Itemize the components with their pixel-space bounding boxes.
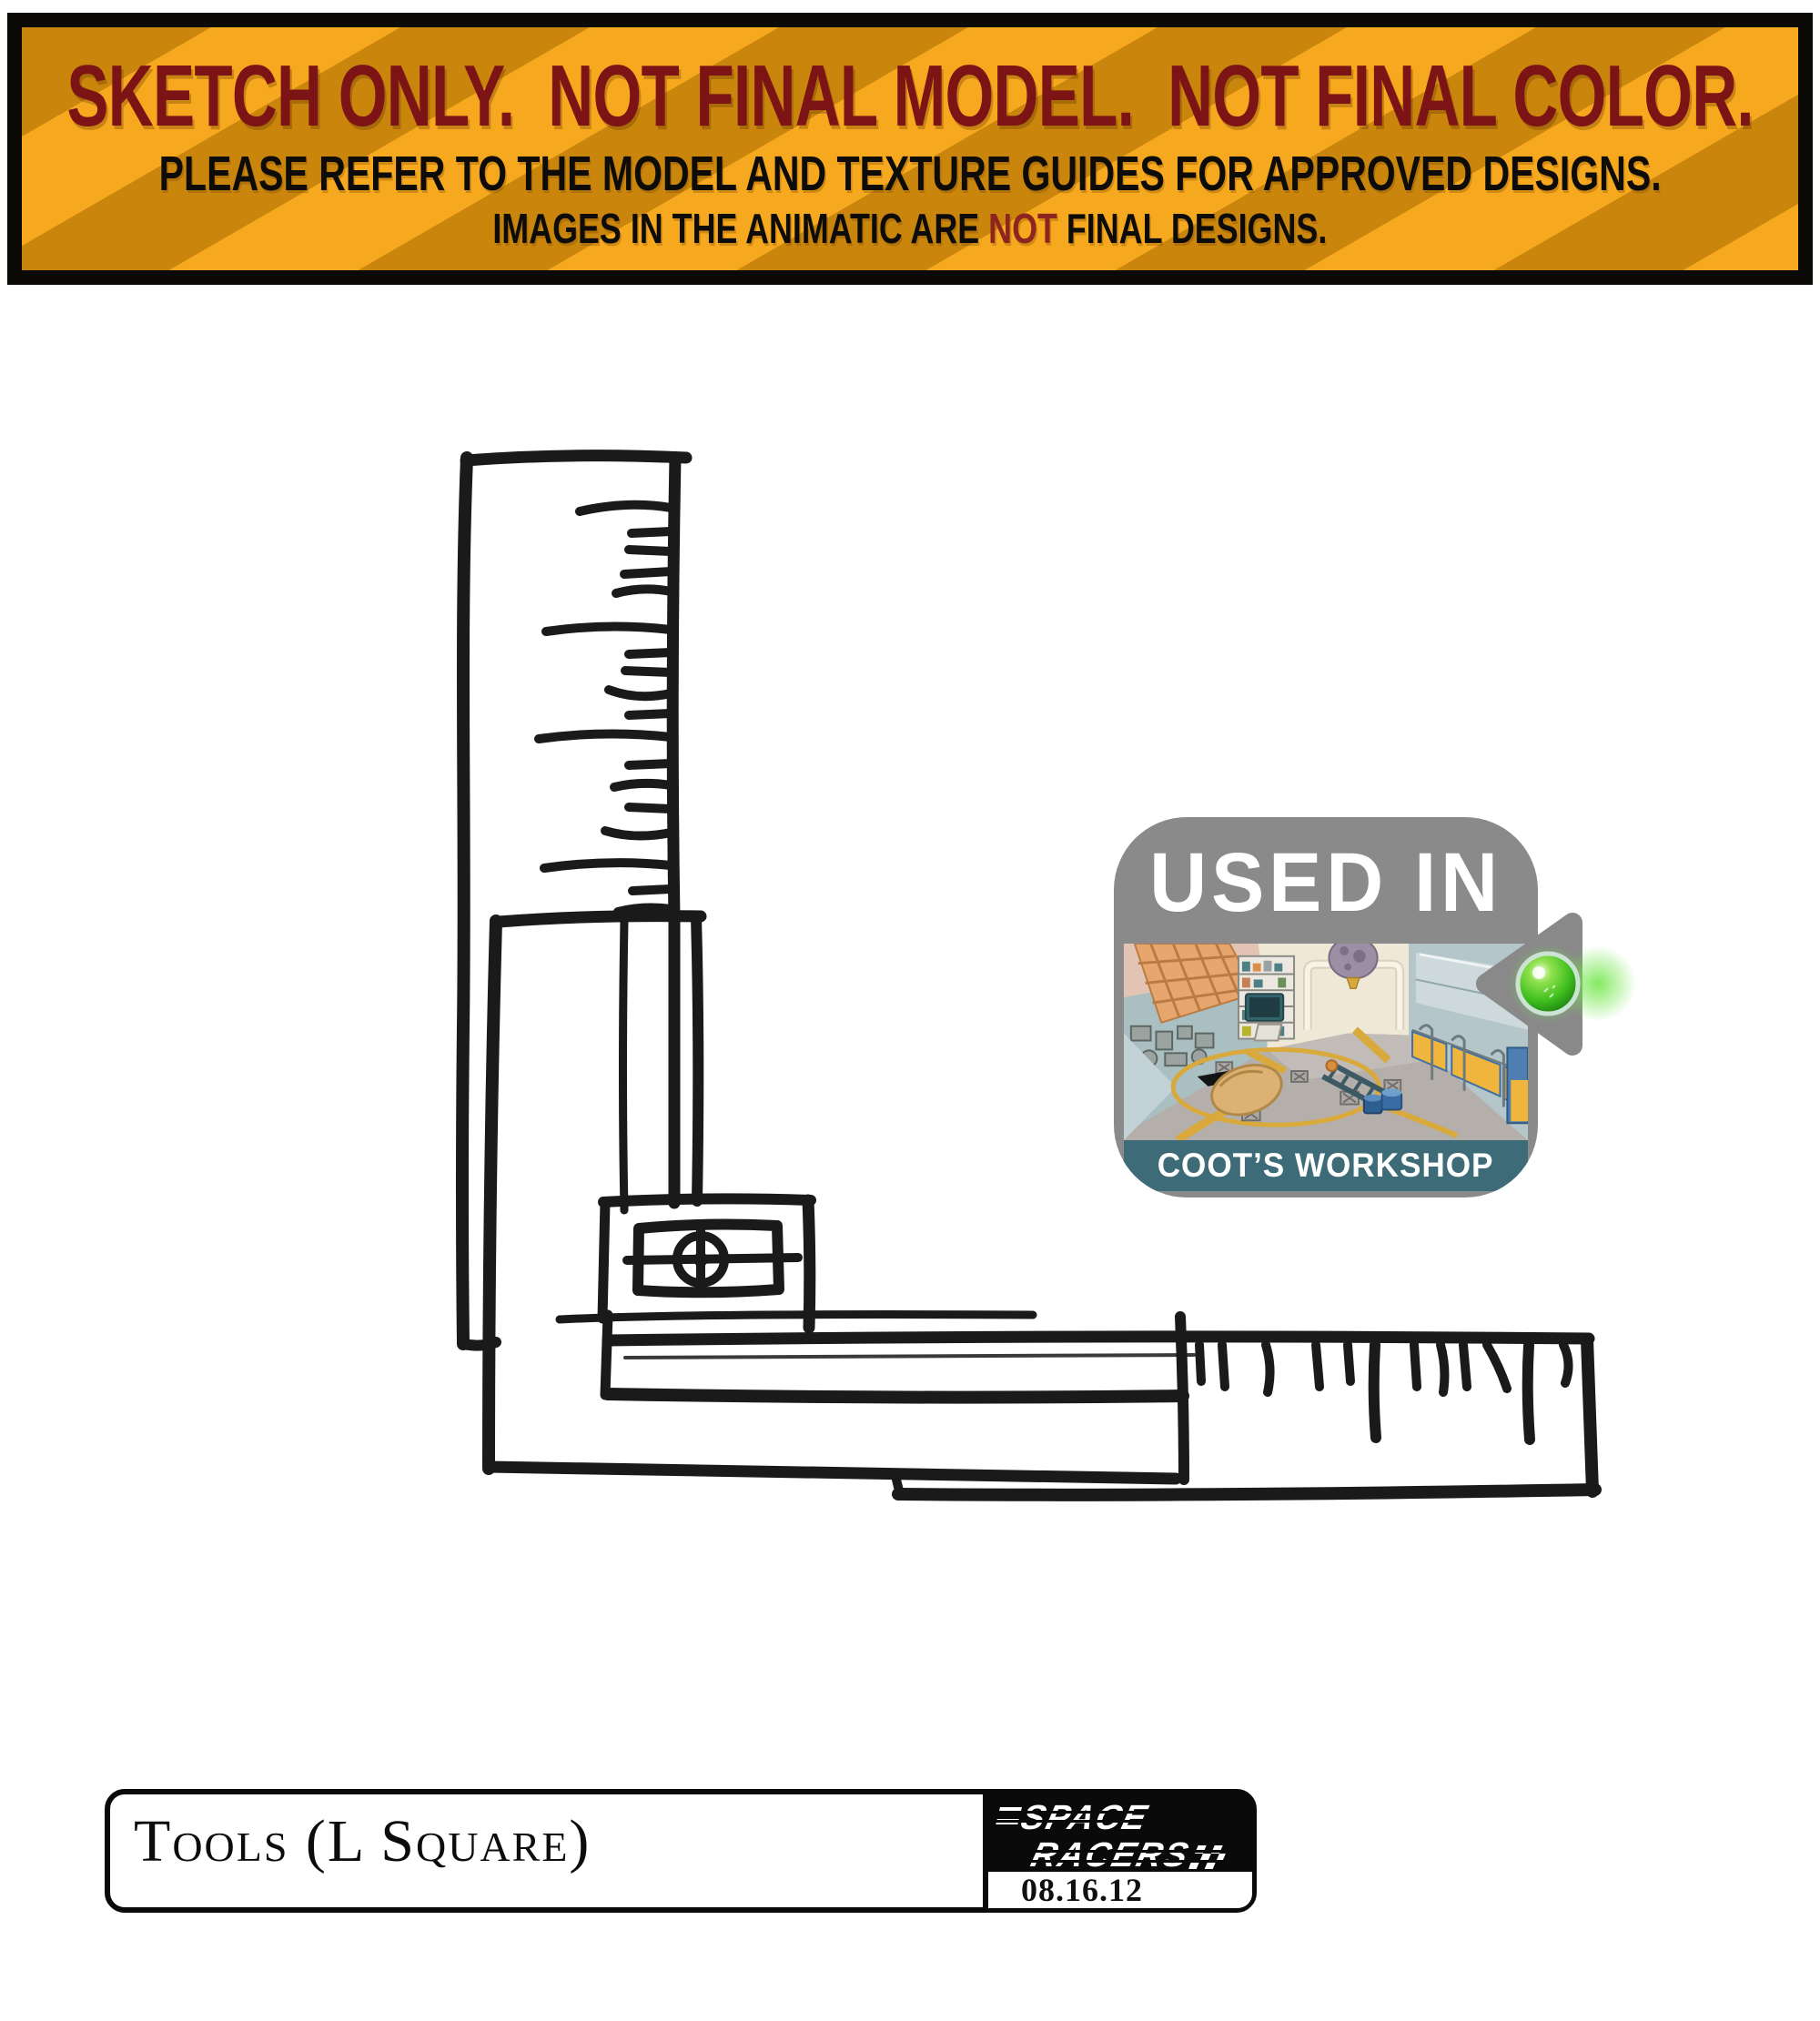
play-arrow-button[interactable]	[1447, 883, 1665, 1092]
blade-end-cap	[1587, 1339, 1592, 1491]
horizontal-ruler-ticks	[1199, 1345, 1569, 1440]
sheet-date: 08.16.12	[1021, 1871, 1143, 1909]
badge-caption-band: COOT’S WORKSHOP	[1124, 1140, 1528, 1191]
blade-bottom-edge	[898, 1490, 1595, 1495]
stock-bottom-edge	[489, 1467, 1176, 1479]
stock-top-edge	[499, 916, 701, 922]
stock-left-edge	[489, 921, 496, 1469]
logo-line-space: SPACE	[993, 1801, 1152, 1835]
sheet-title: Tools (L Square)	[134, 1809, 591, 1875]
vertical-ruler-ticks	[539, 505, 671, 912]
center-fitting	[602, 1198, 811, 1328]
green-orb-icon	[1518, 954, 1578, 1014]
space-racers-logo: SPACE RACERS	[983, 1794, 1252, 1872]
checkered-flag-icon	[1189, 1845, 1229, 1869]
blade-top-edge	[608, 1337, 1589, 1340]
design-sheet-page: SKETCH ONLY. NOT FINAL MODEL. NOT FINAL …	[0, 0, 1820, 2021]
stock-right-edge	[696, 917, 698, 1201]
date-cell: 08.16.12	[983, 1872, 1252, 1908]
badge-caption: COOT’S WORKSHOP	[1158, 1147, 1494, 1185]
ruler-top-edge	[466, 456, 686, 460]
logo-line-racers: RACERS	[1027, 1838, 1231, 1872]
title-block: Tools (L Square) SPACE RACERS 08.16.12	[105, 1789, 1257, 1913]
ruler-left-edge	[462, 458, 467, 1344]
